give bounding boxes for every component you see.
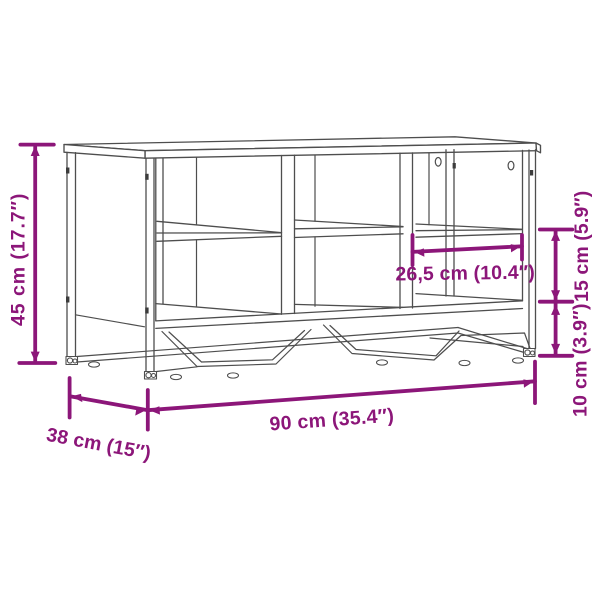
svg-text:45 cm (17.7″): 45 cm (17.7″): [8, 193, 30, 326]
svg-text:10 cm (3.9″): 10 cm (3.9″): [569, 303, 591, 417]
svg-text:26,5 cm (10.4″): 26,5 cm (10.4″): [395, 262, 535, 286]
svg-text:15 cm (5.9″): 15 cm (5.9″): [571, 191, 593, 302]
svg-text:90 cm (35.4″): 90 cm (35.4″): [269, 405, 395, 436]
svg-text:38 cm (15″): 38 cm (15″): [45, 424, 153, 465]
